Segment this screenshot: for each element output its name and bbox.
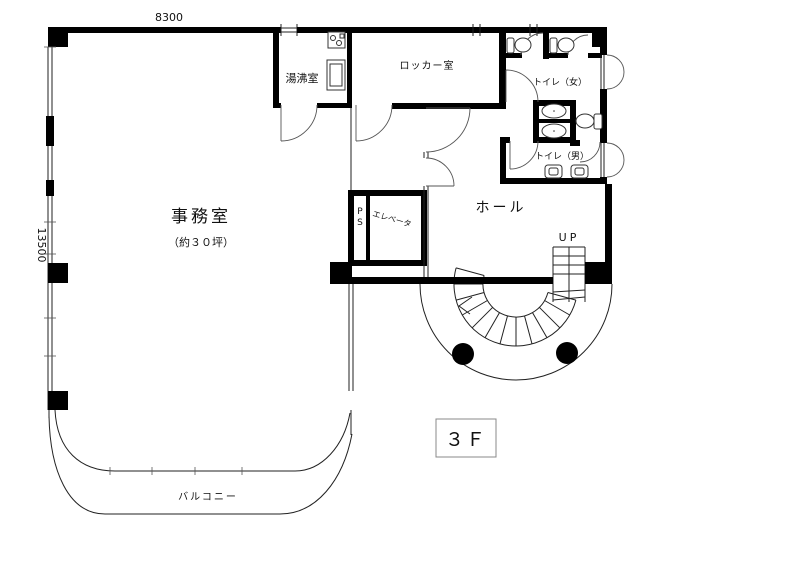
- room-label-office: 事務室: [171, 207, 231, 227]
- floor-badge: ３Ｆ: [436, 419, 496, 457]
- floor-plan-page: 8300 13500 事務室 （約３０坪） 湯沸室 ロッカー室 トイレ（女） ト…: [0, 0, 800, 566]
- toilet-icon: [507, 38, 531, 53]
- dimension-top: 8300: [155, 11, 183, 24]
- toilet-icon: [550, 38, 574, 53]
- urinal-icon: [545, 165, 562, 178]
- room-label-balcony: バルコニー: [178, 491, 238, 503]
- floor-plan-canvas: 8300 13500 事務室 （約３０坪） 湯沸室 ロッカー室 トイレ（女） ト…: [0, 0, 800, 566]
- room-label-office-area: （約３０坪）: [168, 235, 234, 249]
- sink-icon: [542, 104, 566, 118]
- floor-label: ３Ｆ: [445, 429, 487, 451]
- room-label-elevator: エレベータ: [371, 209, 412, 229]
- room-label-toilet-women: トイレ（女）: [533, 76, 587, 88]
- room-label-pipe-shaft: PS: [355, 207, 365, 229]
- kitchen-sink-icon: [327, 60, 345, 90]
- room-label-locker: ロッカー室: [400, 59, 455, 72]
- room-label-kitchenette: 湯沸室: [286, 71, 319, 85]
- round-column: [452, 343, 474, 365]
- toilet-icon: [576, 114, 602, 129]
- stove-icon: [328, 32, 345, 48]
- sink-icon: [542, 124, 566, 138]
- round-column: [556, 342, 578, 364]
- room-label-toilet-men: トイレ（男）: [535, 151, 589, 162]
- stair-direction-arrow-icon: [459, 297, 472, 314]
- column: [48, 27, 68, 47]
- room-label-hall: ホール: [476, 200, 527, 216]
- straight-stairs-up: [553, 247, 585, 302]
- spiral-staircase: [420, 268, 612, 380]
- column: [48, 263, 68, 283]
- urinal-icon: [571, 165, 588, 178]
- stairs-up-label: UP: [559, 231, 580, 244]
- column: [48, 391, 68, 410]
- dimension-left: 13500: [35, 228, 48, 263]
